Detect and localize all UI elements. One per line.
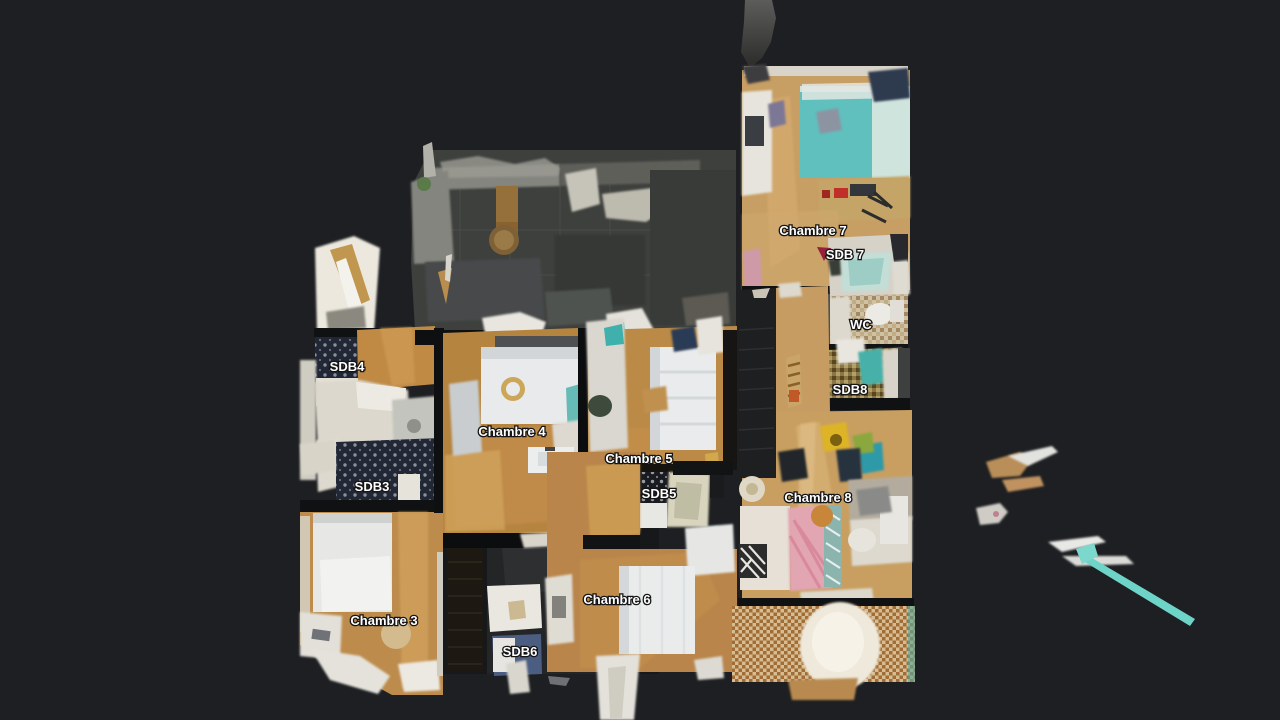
svg-text:Chambre 7: Chambre 7: [779, 223, 846, 238]
svg-text:SDB 7: SDB 7: [826, 247, 864, 262]
svg-text:Chambre 5: Chambre 5: [605, 451, 672, 466]
svg-text:SDB6: SDB6: [503, 644, 538, 659]
svg-text:SDB8: SDB8: [833, 382, 868, 397]
svg-text:SDB3: SDB3: [355, 479, 390, 494]
svg-text:WC: WC: [850, 317, 872, 332]
svg-text:Chambre 3: Chambre 3: [350, 613, 417, 628]
svg-text:Chambre 8: Chambre 8: [784, 490, 851, 505]
svg-text:SDB4: SDB4: [330, 359, 365, 374]
svg-text:SDB5: SDB5: [642, 486, 677, 501]
svg-text:Chambre 6: Chambre 6: [583, 592, 650, 607]
svg-text:Chambre 4: Chambre 4: [478, 424, 546, 439]
